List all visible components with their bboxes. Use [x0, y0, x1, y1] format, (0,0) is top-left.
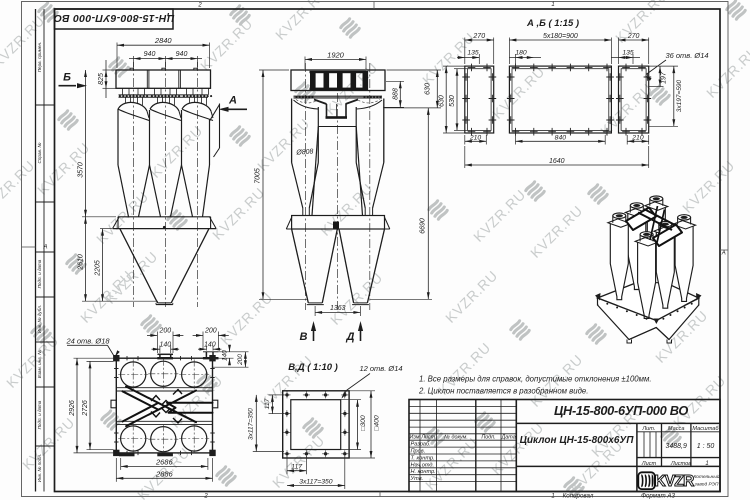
svg-text:Пров.: Пров.: [411, 449, 426, 455]
svg-text:24 отв. Ø18: 24 отв. Ø18: [65, 337, 110, 346]
svg-text:Справ. №: Справ. №: [37, 143, 42, 164]
svg-text:Взам. инв. №: Взам. инв. №: [37, 350, 42, 378]
svg-text:2205: 2205: [95, 260, 102, 277]
svg-text:6690: 6690: [420, 218, 427, 234]
svg-text:1 : 50: 1 : 50: [697, 443, 715, 450]
svg-text:Подп.: Подп.: [481, 435, 495, 441]
svg-text:Дата: Дата: [500, 435, 515, 441]
svg-text:2. Циклон поставляется в разоб: 2. Циклон поставляется в разобранном вид…: [418, 387, 588, 396]
svg-text:1640: 1640: [549, 158, 565, 165]
svg-text:140: 140: [204, 341, 216, 348]
svg-text:940: 940: [144, 51, 156, 58]
svg-text:ЦН-15-800-6УП-000 ВО: ЦН-15-800-6УП-000 ВО: [54, 12, 175, 24]
svg-text:840: 840: [555, 134, 567, 141]
svg-text:Ø808: Ø808: [295, 148, 314, 156]
svg-text:3488,9: 3488,9: [665, 443, 687, 450]
svg-text:ЦН-15-800-6УП-000 ВО: ЦН-15-800-6УП-000 ВО: [554, 403, 688, 418]
svg-text:Масштаб: Масштаб: [692, 426, 719, 432]
svg-text:Н. контр.: Н. контр.: [411, 469, 436, 475]
svg-text:825: 825: [98, 73, 105, 85]
svg-text:197: 197: [661, 71, 668, 84]
svg-text:180: 180: [515, 50, 527, 57]
svg-text:□400: □400: [374, 415, 381, 431]
svg-text:Лит.: Лит.: [641, 426, 655, 432]
svg-text:1920: 1920: [327, 50, 345, 59]
svg-text:888: 888: [392, 88, 399, 100]
svg-text:12 отв. Ø14: 12 отв. Ø14: [359, 364, 402, 373]
svg-text:210: 210: [631, 134, 644, 141]
svg-text:1: 1: [551, 494, 554, 500]
svg-text:210: 210: [469, 134, 482, 141]
svg-text:135: 135: [622, 50, 634, 57]
svg-text:36 отв. Ø14: 36 отв. Ø14: [665, 51, 708, 60]
svg-text:Инв. № дубл.: Инв. № дубл.: [37, 305, 42, 333]
svg-text:1: 1: [551, 2, 554, 8]
svg-text:Котельный: Котельный: [693, 473, 719, 480]
svg-text:2840: 2840: [154, 36, 173, 45]
svg-text:□300: □300: [360, 415, 367, 431]
svg-text:270: 270: [472, 33, 485, 40]
svg-text:5x180=900: 5x180=900: [543, 33, 578, 40]
svg-text:117: 117: [291, 464, 302, 471]
svg-text:3x197=590: 3x197=590: [676, 79, 683, 112]
svg-text:завод РЭП: завод РЭП: [694, 482, 719, 488]
svg-text:Подп. и дата: Подп. и дата: [37, 259, 42, 288]
svg-text:Листов: Листов: [670, 461, 691, 467]
svg-text:1. Все размеры для справок, до: 1. Все размеры для справок, допустимые о…: [419, 375, 652, 384]
svg-text:Лист: Лист: [641, 461, 657, 467]
svg-text:3x117=350: 3x117=350: [299, 479, 333, 486]
svg-text:2: 2: [197, 3, 202, 9]
svg-text:2: 2: [203, 494, 208, 500]
svg-text:940: 940: [176, 51, 188, 58]
svg-text:630: 630: [425, 83, 432, 95]
svg-text:Перв. примен.: Перв. примен.: [37, 42, 42, 73]
svg-text:117: 117: [264, 398, 271, 409]
svg-text:Циклон ЦН-15-800х6УП: Циклон ЦН-15-800х6УП: [520, 435, 635, 446]
svg-text:В: В: [300, 331, 308, 343]
svg-text:2686: 2686: [155, 457, 174, 466]
svg-text:2926: 2926: [69, 400, 76, 417]
svg-text:530: 530: [449, 95, 456, 107]
svg-text:200: 200: [204, 327, 217, 334]
svg-text:3x117=350: 3x117=350: [248, 408, 255, 440]
svg-text:200: 200: [158, 327, 171, 334]
svg-text:Т. контр.: Т. контр.: [411, 455, 435, 461]
svg-text:2610: 2610: [78, 254, 85, 271]
svg-text:Подп. и дата: Подп. и дата: [37, 400, 42, 429]
svg-text:3570: 3570: [78, 162, 85, 178]
svg-text:Утв.: Утв.: [410, 476, 424, 482]
svg-text:Изм: Изм: [410, 435, 420, 441]
svg-text:А: А: [42, 245, 47, 251]
svg-text:Масса: Масса: [668, 426, 685, 432]
svg-text:Копировал: Копировал: [563, 493, 594, 500]
svg-text:В,Д ( 1:10 ): В,Д ( 1:10 ): [288, 362, 338, 373]
svg-text:2886: 2886: [155, 469, 174, 478]
svg-text:А: А: [721, 251, 726, 257]
svg-text:1363: 1363: [330, 305, 346, 312]
svg-text:KVZR: KVZR: [655, 473, 695, 490]
svg-text:135: 135: [467, 50, 479, 57]
svg-text:200: 200: [237, 354, 244, 366]
svg-text:270: 270: [627, 33, 640, 40]
svg-text:Нач.отд.: Нач.отд.: [411, 462, 435, 468]
svg-text:630: 630: [438, 95, 445, 107]
svg-text:1: 1: [705, 461, 708, 467]
svg-text:7005: 7005: [255, 168, 262, 184]
svg-text:А: А: [228, 95, 237, 107]
svg-text:140: 140: [221, 350, 228, 361]
svg-text:№ докум.: № докум.: [444, 435, 468, 441]
svg-text:А ,Б ( 1:15 ): А ,Б ( 1:15 ): [526, 18, 579, 29]
svg-text:Д: Д: [346, 331, 355, 343]
svg-text:Лист: Лист: [420, 435, 435, 441]
svg-text:Б: Б: [63, 72, 71, 84]
svg-text:Разраб.: Разраб.: [411, 442, 431, 448]
svg-text:2726: 2726: [82, 400, 89, 417]
svg-text:Формат А3: Формат А3: [641, 493, 675, 500]
svg-text:140: 140: [159, 341, 171, 348]
svg-text:Инв. № подл.: Инв. № подл.: [37, 454, 42, 483]
